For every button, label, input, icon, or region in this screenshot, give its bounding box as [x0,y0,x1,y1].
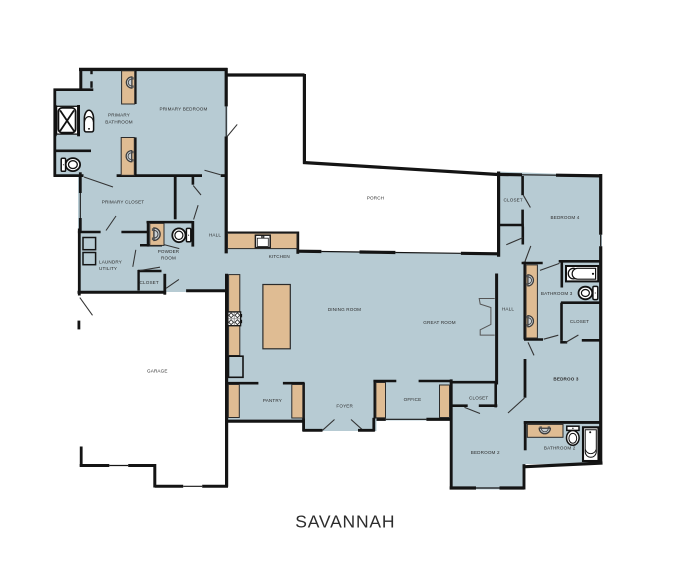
svg-text:BEDROO 3: BEDROO 3 [553,377,578,382]
svg-text:CLOSET: CLOSET [570,319,589,324]
svg-text:GREAT ROOM: GREAT ROOM [423,320,455,325]
svg-text:FOYER: FOYER [336,404,353,409]
svg-text:BATHROOM 3: BATHROOM 3 [541,291,573,296]
svg-text:BEDROOM 2: BEDROOM 2 [471,450,500,455]
svg-text:PANTRY: PANTRY [263,398,282,403]
svg-text:CLOSET: CLOSET [504,197,523,202]
svg-text:ROOM: ROOM [161,256,176,261]
svg-text:BATHROOM: BATHROOM [105,120,132,125]
svg-text:SAVANNAH: SAVANNAH [295,511,395,531]
svg-text:PRIMARY: PRIMARY [108,113,130,118]
svg-text:HALL: HALL [209,233,221,238]
svg-text:UTILITY: UTILITY [99,266,117,271]
svg-text:DINING ROOM: DINING ROOM [328,307,361,312]
svg-text:PORCH: PORCH [367,196,384,201]
svg-text:LAUNDRY: LAUNDRY [99,260,122,265]
svg-text:HALL: HALL [502,307,514,312]
svg-text:CLOSET: CLOSET [469,395,488,400]
svg-text:POWDER: POWDER [158,249,180,254]
svg-text:CLOSET: CLOSET [140,280,159,285]
svg-text:PRIMARY CLOSET: PRIMARY CLOSET [102,200,145,205]
svg-text:BATHROOM 2: BATHROOM 2 [544,446,576,451]
svg-text:BEDROOM 4: BEDROOM 4 [551,215,580,220]
svg-text:KITCHEN: KITCHEN [269,254,290,259]
svg-text:GARAGE: GARAGE [147,369,168,374]
svg-text:PRIMARY BEDROOM: PRIMARY BEDROOM [159,107,207,112]
svg-text:OFFICE: OFFICE [404,397,422,402]
